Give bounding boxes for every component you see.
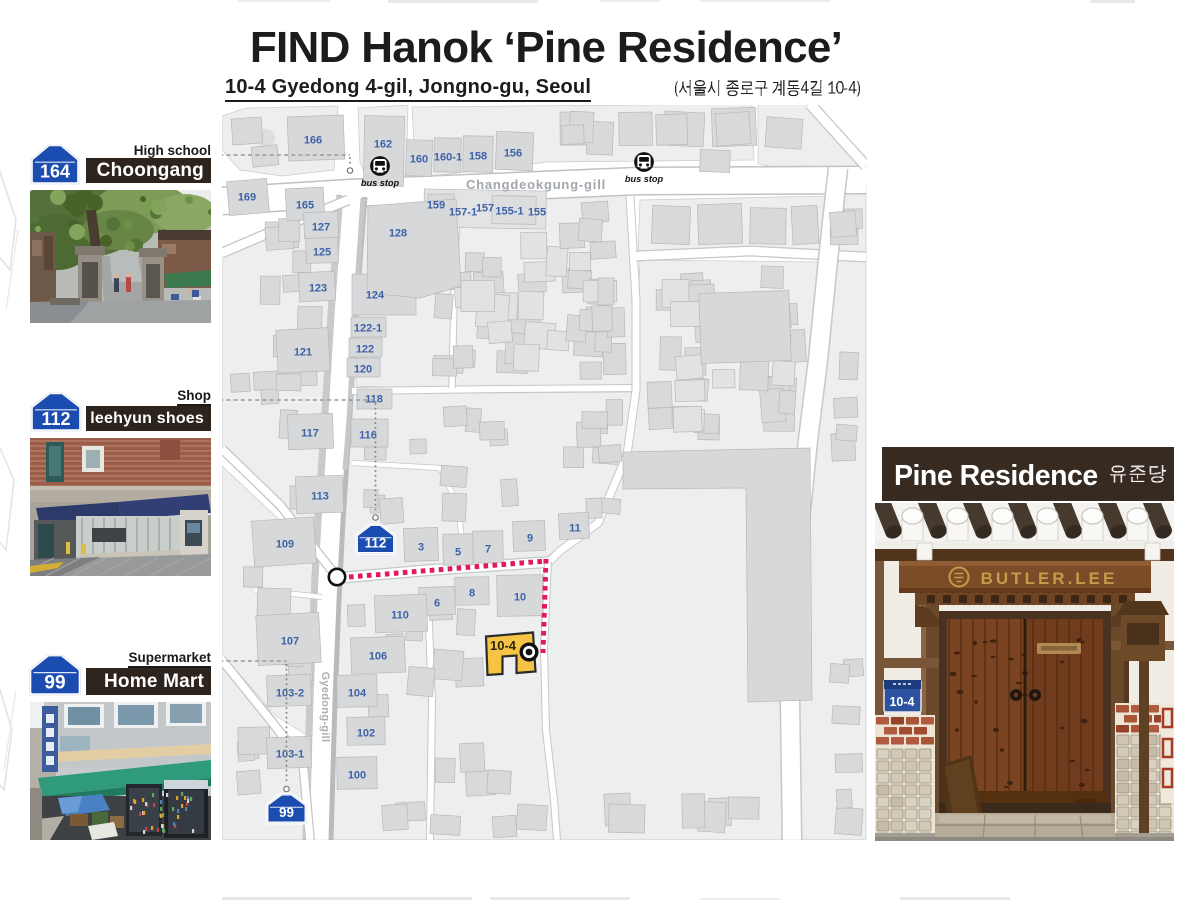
- svg-text:164: 164: [39, 161, 69, 181]
- svg-text:110: 110: [391, 610, 409, 622]
- svg-text:117: 117: [301, 428, 319, 440]
- svg-text:125: 125: [313, 247, 331, 259]
- svg-text:112: 112: [365, 536, 387, 551]
- svg-text:8: 8: [469, 588, 475, 600]
- svg-text:103-1: 103-1: [276, 749, 304, 761]
- svg-text:160-1: 160-1: [434, 152, 462, 164]
- svg-text:109: 109: [276, 539, 294, 551]
- svg-text:122: 122: [356, 344, 374, 356]
- svg-text:122-1: 122-1: [354, 323, 382, 335]
- svg-text:124: 124: [366, 290, 385, 302]
- svg-text:9: 9: [527, 533, 533, 545]
- svg-text:159: 159: [427, 200, 445, 212]
- svg-text:166: 166: [304, 135, 322, 147]
- svg-text:106: 106: [369, 651, 387, 663]
- svg-text:116: 116: [359, 430, 377, 442]
- svg-text:169: 169: [238, 192, 256, 204]
- svg-text:157: 157: [476, 203, 494, 215]
- svg-text:102: 102: [357, 728, 375, 740]
- svg-text:7: 7: [485, 544, 491, 556]
- svg-text:99: 99: [44, 672, 65, 693]
- svg-text:155: 155: [528, 207, 546, 219]
- svg-text:123: 123: [309, 283, 327, 295]
- svg-text:Gyedong-gill: Gyedong-gill: [319, 672, 331, 743]
- svg-text:165: 165: [296, 200, 314, 212]
- svg-text:121: 121: [294, 347, 312, 359]
- svg-text:120: 120: [354, 364, 372, 376]
- svg-text:10: 10: [514, 592, 526, 604]
- svg-text:3: 3: [418, 542, 424, 554]
- svg-text:112: 112: [41, 409, 70, 429]
- svg-text:127: 127: [312, 222, 330, 234]
- svg-text:10-4: 10-4: [490, 638, 517, 653]
- svg-text:155-1: 155-1: [495, 206, 523, 218]
- svg-text:bus stop: bus stop: [361, 178, 400, 188]
- svg-text:160: 160: [410, 154, 428, 166]
- svg-text:Changdeokgung-gill: Changdeokgung-gill: [466, 177, 606, 192]
- svg-text:11: 11: [569, 523, 581, 535]
- svg-text:10-4: 10-4: [889, 695, 914, 709]
- svg-text:113: 113: [311, 491, 329, 503]
- svg-text:158: 158: [469, 151, 487, 163]
- svg-text:5: 5: [455, 547, 461, 559]
- svg-text:104: 104: [348, 688, 367, 700]
- svg-text:6: 6: [434, 598, 440, 610]
- svg-text:128: 128: [389, 228, 407, 240]
- svg-text:99: 99: [279, 805, 294, 820]
- svg-text:100: 100: [348, 770, 366, 782]
- svg-text:156: 156: [504, 148, 522, 160]
- svg-text:bus stop: bus stop: [625, 174, 664, 184]
- svg-text:107: 107: [281, 636, 299, 648]
- svg-text:BUTLER.LEE: BUTLER.LEE: [981, 569, 1118, 588]
- svg-text:103-2: 103-2: [276, 688, 304, 700]
- svg-text:162: 162: [374, 139, 392, 151]
- svg-text:157-1: 157-1: [449, 207, 477, 219]
